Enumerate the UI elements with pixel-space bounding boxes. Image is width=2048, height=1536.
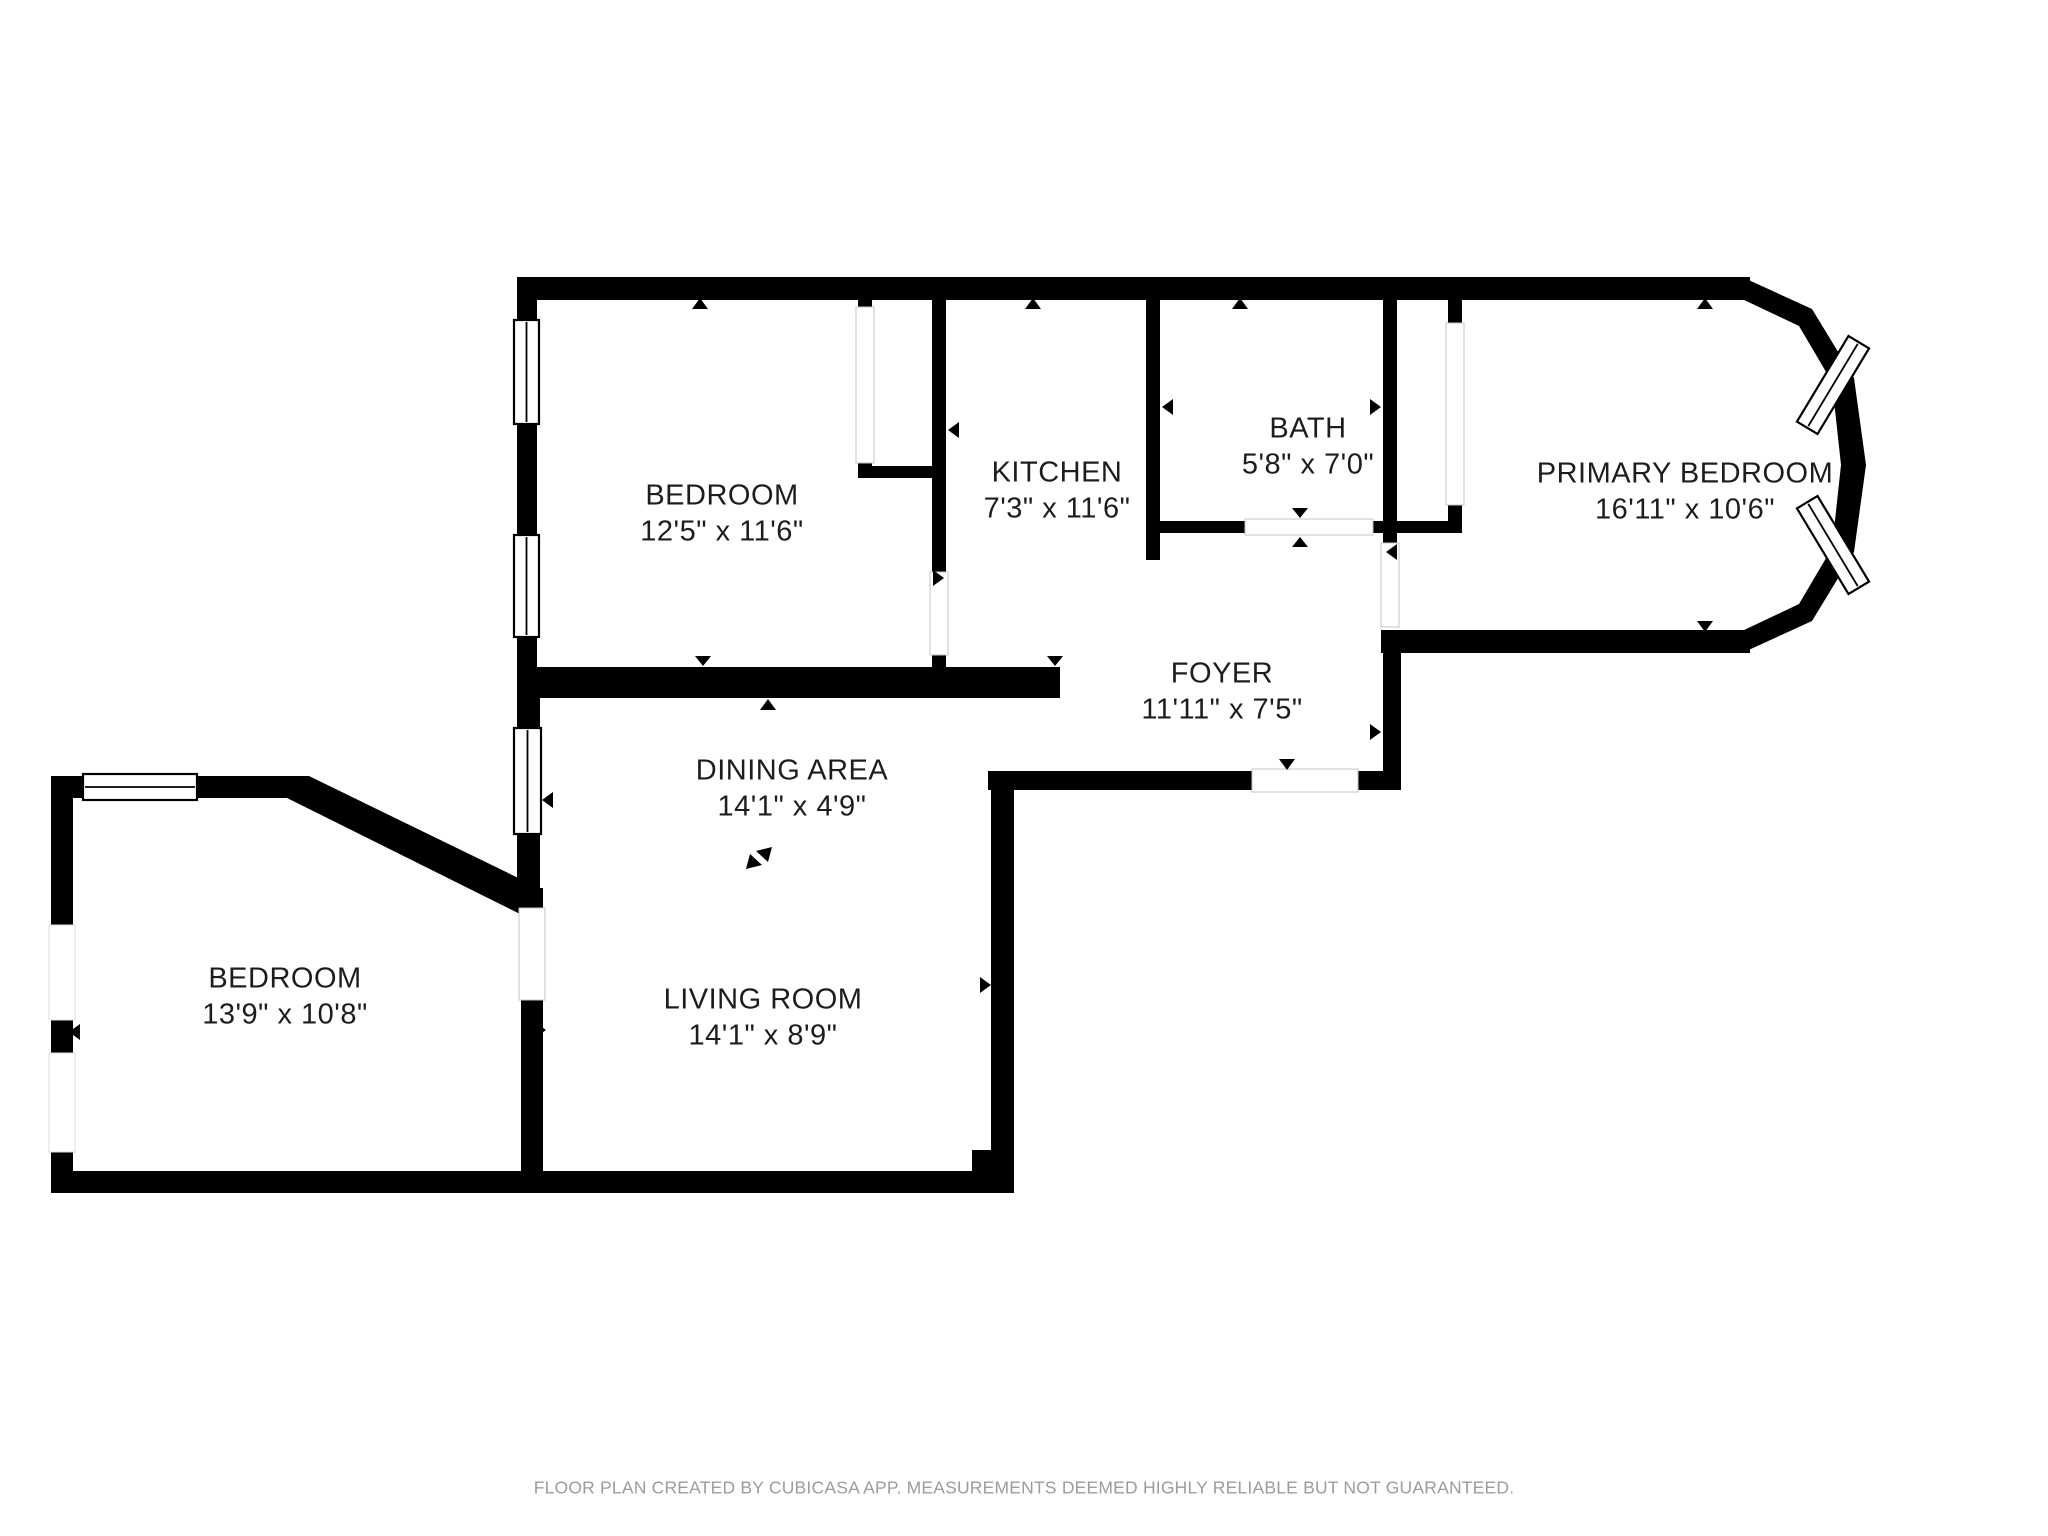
arrow-dining-window (542, 792, 553, 808)
room-dimensions: 14'1" x 8'9" (689, 1020, 838, 1052)
room-label-primary-bedroom: PRIMARY BEDROOM 16'11" x 10'6" (1537, 458, 1833, 526)
wall-diagonal (287, 776, 543, 914)
wall-bottom (51, 1171, 1014, 1193)
room-dimensions: 5'8" x 7'0" (1242, 449, 1374, 481)
room-name: PRIMARY BEDROOM (1537, 458, 1833, 490)
door-bath (1245, 519, 1373, 535)
wall-foyer-bottom (988, 771, 1252, 790)
arrow-bath-door-down (1292, 537, 1308, 547)
room-label-living-room: LIVING ROOM 14'1" x 8'9" (664, 984, 863, 1052)
arrow-dining-top (760, 699, 776, 710)
window-dining (514, 728, 541, 834)
wall-dining-top (517, 667, 1060, 698)
wall-living-right (991, 773, 1014, 1193)
window-bedroom2-left-upper (49, 925, 75, 1020)
door-bedroom2 (519, 908, 545, 1000)
arrow-foyer-right-lower (1370, 724, 1381, 740)
room-name: DINING AREA (696, 755, 889, 787)
arrow-entry (1279, 759, 1295, 770)
arrow-bath-door-up (1292, 508, 1308, 518)
arrow-thickwall-right (1047, 656, 1063, 666)
room-labels: BEDROOM 12'5" x 11'6" KITCHEN 7'3" x 11'… (202, 413, 1833, 1052)
arrow-thickwall-left (695, 656, 711, 666)
wall-bath-right (1383, 290, 1397, 543)
arrow-dining-pair (746, 847, 772, 869)
room-dimensions: 16'11" x 10'6" (1595, 494, 1775, 526)
room-name: LIVING ROOM (664, 984, 863, 1016)
window-bedroom2-left-lower (49, 1053, 75, 1152)
arrow-bath-left (1162, 399, 1173, 415)
floor-plan-canvas: BEDROOM 12'5" x 11'6" KITCHEN 7'3" x 11'… (0, 0, 2048, 1536)
room-name: KITCHEN (992, 457, 1123, 489)
room-dimensions: 12'5" x 11'6" (640, 516, 803, 548)
arrow-living-right (980, 977, 991, 993)
arrow-bath-right (1370, 399, 1381, 415)
room-label-bath: BATH 5'8" x 7'0" (1242, 413, 1374, 481)
room-dimensions: 7'3" x 11'6" (984, 493, 1131, 525)
room-label-kitchen: KITCHEN 7'3" x 11'6" (984, 457, 1131, 525)
wall-primary-left (1448, 290, 1462, 323)
window-bedroom2-top (83, 774, 197, 800)
floor-plan-page: BEDROOM 12'5" x 11'6" KITCHEN 7'3" x 11'… (0, 0, 2048, 1536)
wall-top (517, 277, 1750, 300)
room-dimensions: 14'1" x 4'9" (718, 791, 867, 823)
wall-kitchen-left (932, 290, 946, 572)
room-name: FOYER (1171, 658, 1273, 690)
room-label-foyer: FOYER 11'11" x 7'5" (1141, 658, 1302, 726)
window-bedroom1-lower (514, 535, 539, 637)
room-dimensions: 13'9" x 10'8" (202, 999, 368, 1031)
window-bedroom1-upper (514, 320, 539, 424)
room-label-bedroom-1: BEDROOM 12'5" x 11'6" (640, 480, 803, 548)
wall-kitchen-right (1146, 290, 1160, 560)
room-label-bedroom-2: BEDROOM 13'9" x 10'8" (202, 963, 368, 1031)
door-entry (1252, 769, 1358, 792)
room-name: BEDROOM (645, 480, 798, 512)
room-label-dining-area: DINING AREA 14'1" x 4'9" (696, 755, 889, 823)
room-name: BATH (1269, 413, 1346, 445)
room-dimensions: 11'11" x 7'5" (1141, 694, 1302, 726)
arrow-kitchen-wall (948, 422, 959, 438)
door-closet-bedroom1 (856, 307, 874, 463)
door-primary-bedroom (1446, 323, 1464, 505)
door-kitchen (930, 572, 948, 655)
wall-primary-bottom (1381, 630, 1750, 653)
walls (51, 277, 1866, 1193)
room-name: BEDROOM (208, 963, 361, 995)
footer-disclaimer: FLOOR PLAN CREATED BY CUBICASA APP. MEAS… (534, 1478, 1515, 1498)
